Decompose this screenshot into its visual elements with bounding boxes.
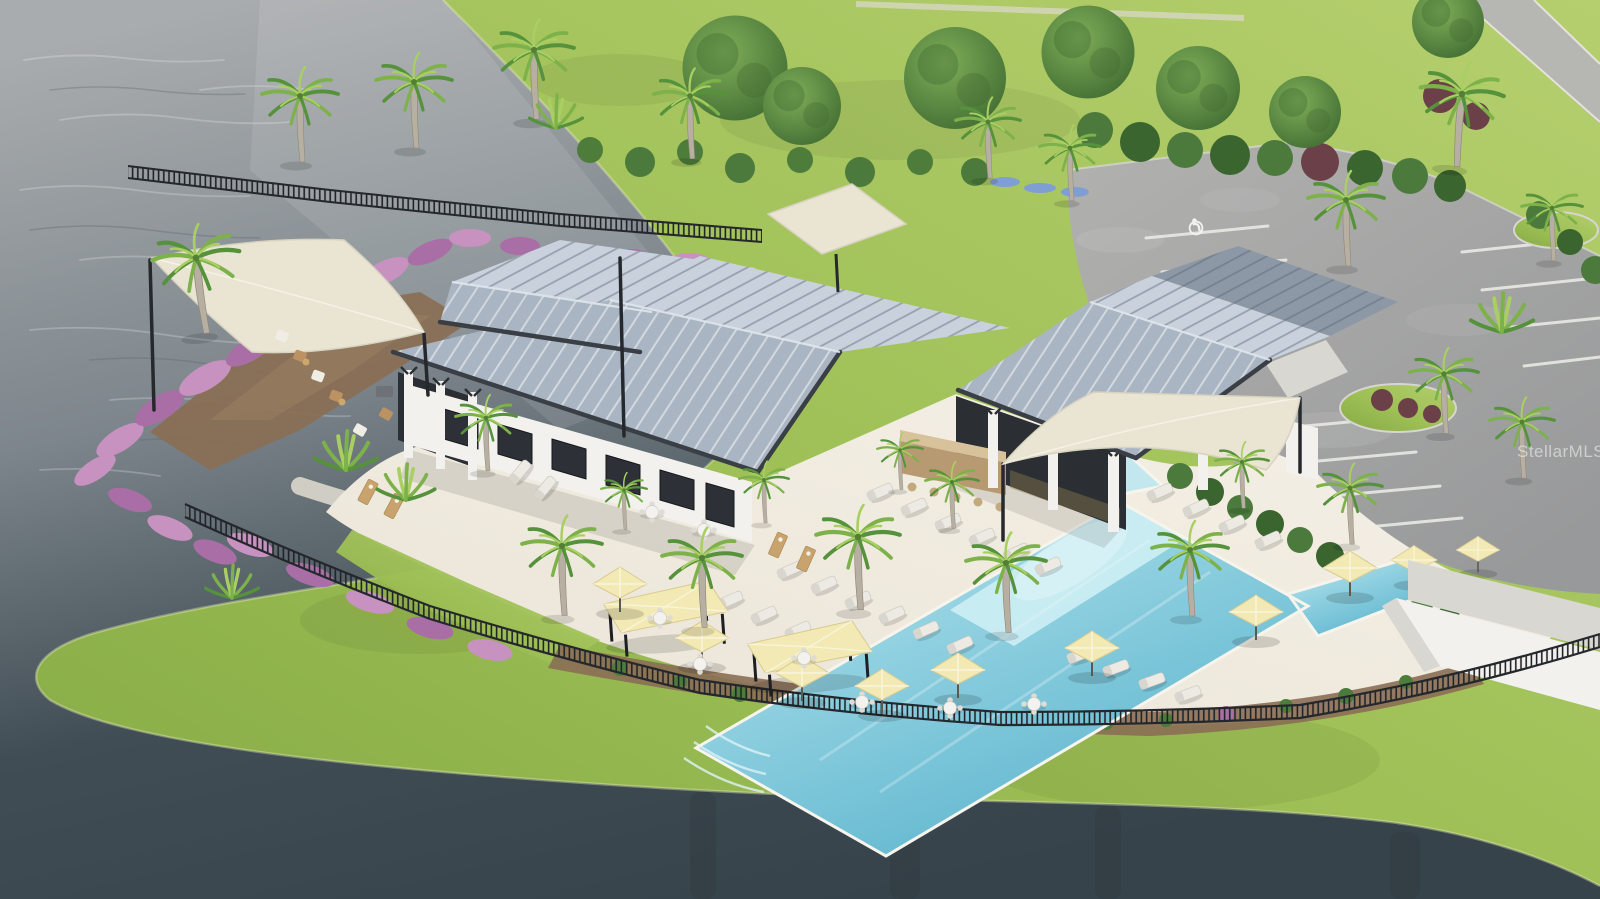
watermark: StellarMLS	[1517, 442, 1600, 461]
grill-cabinet	[376, 386, 393, 397]
rendering-canvas: StellarMLS	[0, 0, 1600, 899]
